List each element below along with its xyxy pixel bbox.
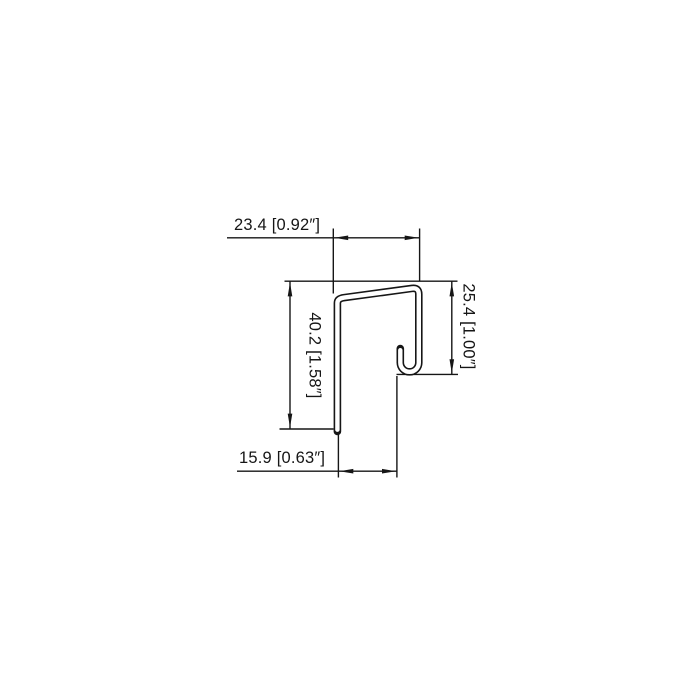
left-arrow-down <box>288 414 293 428</box>
right-arrow-down <box>450 359 455 373</box>
profile-sheet-inner <box>337 288 418 429</box>
bottom-arrow-right <box>382 469 396 474</box>
dim-label-top-width: 23.4 [0.92″] <box>234 217 320 234</box>
drawing-canvas: 23.4 [0.92″] 40.2 [1.58″] 25.4 [1.00″] 1… <box>0 0 700 700</box>
profile-outline <box>337 288 418 431</box>
left-arrow-up <box>288 282 293 296</box>
profile-drawing <box>0 0 700 700</box>
bottom-arrow-left <box>339 469 353 474</box>
right-arrow-up <box>450 282 455 296</box>
top-arrow-left <box>334 236 348 241</box>
dim-label-left-height: 40.2 [1.58″] <box>305 295 322 415</box>
top-arrow-right <box>405 236 419 241</box>
dimension-right-height <box>397 281 459 374</box>
profile-sheet-outer <box>337 288 418 431</box>
dimension-top-width <box>227 229 420 294</box>
dim-label-right-height: 25.4 [1.00″] <box>459 267 476 387</box>
dim-label-bottom-width: 15.9 [0.63″] <box>239 450 325 467</box>
